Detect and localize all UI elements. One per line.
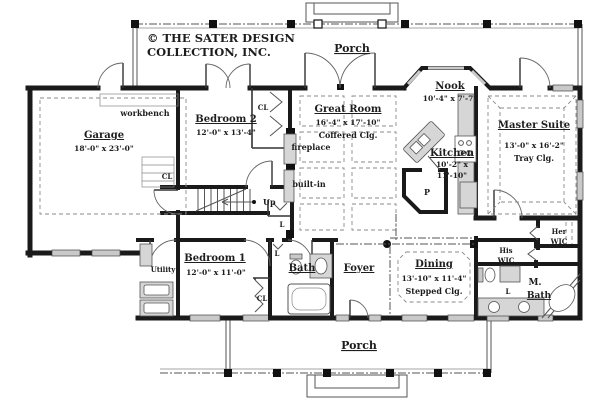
fireplace-label: fireplace (292, 142, 331, 152)
utility-label: Utility (151, 265, 177, 274)
floor-plan-drawing: © THE SATER DESIGN COLLECTION, INC. Porc… (0, 0, 600, 407)
bedroom2-closet-label: CL (258, 103, 269, 112)
exterior-walls (28, 68, 580, 318)
porch-top-label: Porch (334, 42, 370, 55)
master-suite-ceiling: Tray Clg. (514, 153, 554, 163)
great-room-ceiling: Coffered Clg. (319, 130, 378, 140)
bedroom1-dims: 12'-0" x 11'-0" (186, 268, 246, 277)
stairs (196, 189, 256, 211)
garage-closet-label: CL (162, 172, 173, 181)
great-room-dims: 16'-4" x 17'-10" (316, 118, 381, 127)
nook-label: Nook (435, 81, 465, 92)
hall-linen-label: L (275, 249, 280, 258)
porch-bottom-edge (160, 318, 491, 397)
great-room-label: Great Room (315, 104, 382, 115)
bath-sink (315, 258, 327, 274)
mbath-toilet-tank (478, 268, 483, 282)
garage-dims: 18'-0" x 23'-0" (74, 144, 134, 153)
steps-top (306, 3, 398, 22)
stairs-linen-label: L (280, 220, 285, 229)
bedroom2-dims: 12'-0" x 13'-4" (196, 128, 256, 137)
mbath-linen (500, 266, 520, 282)
garage-label: Garage (84, 130, 124, 141)
dining-ceiling: Stepped Clg. (405, 286, 462, 296)
dining-dims: 13'-10" x 11'-4" (402, 274, 467, 283)
copyright-line1: © THE SATER DESIGN (147, 31, 295, 45)
toilet-tank (290, 254, 302, 259)
mbath-label-1: M. (528, 278, 541, 288)
ceiling-dashes (40, 96, 576, 316)
copyright-line2: COLLECTION, INC. (147, 45, 271, 59)
dining-label: Dining (415, 259, 453, 270)
bedroom1-label: Bedroom 1 (184, 253, 245, 264)
built-in-label: built-in (292, 179, 326, 189)
master-suite-dims: 13'-0" x 16'-2" (504, 141, 564, 150)
nook-dims: 10'-4" x 7'-7" (423, 94, 478, 103)
mbath-sink-1 (489, 302, 500, 313)
up-label: Up (263, 197, 276, 207)
her-wic-label-2: WIC (550, 237, 568, 246)
refrigerator (460, 182, 477, 208)
kitchen-label: Kitchen (430, 148, 475, 159)
bedroom1-closet-label: CL (257, 294, 268, 303)
mbath-label-2: Bath (527, 291, 552, 301)
bedroom2-label: Bedroom 2 (195, 114, 256, 125)
his-wic-label-2: WIC (497, 256, 515, 265)
utility-counter (140, 244, 152, 266)
floor-plan: © THE SATER DESIGN COLLECTION, INC. Porc… (0, 0, 600, 407)
mbath-toilet (485, 268, 495, 282)
master-suite-label: Master Suite (498, 120, 570, 131)
his-wic-label-1: His (499, 246, 512, 255)
workbench-counter (100, 94, 178, 106)
foyer-label: Foyer (344, 263, 375, 274)
kitchen-dims-1: 10'-2" x (436, 160, 469, 169)
porch-bottom-label: Porch (341, 339, 377, 352)
kitchen-dims-2: 11'-10" (437, 171, 467, 180)
steps-bottom (307, 375, 407, 397)
bathtub (288, 284, 330, 314)
her-wic-label-1: Her (552, 227, 567, 236)
pantry-label: P (424, 187, 430, 197)
workbench-label: workbench (119, 108, 169, 118)
mbath-linen-label: L (506, 287, 511, 296)
mbath-sink-2 (519, 302, 530, 313)
bath-label: Bath (289, 263, 317, 274)
